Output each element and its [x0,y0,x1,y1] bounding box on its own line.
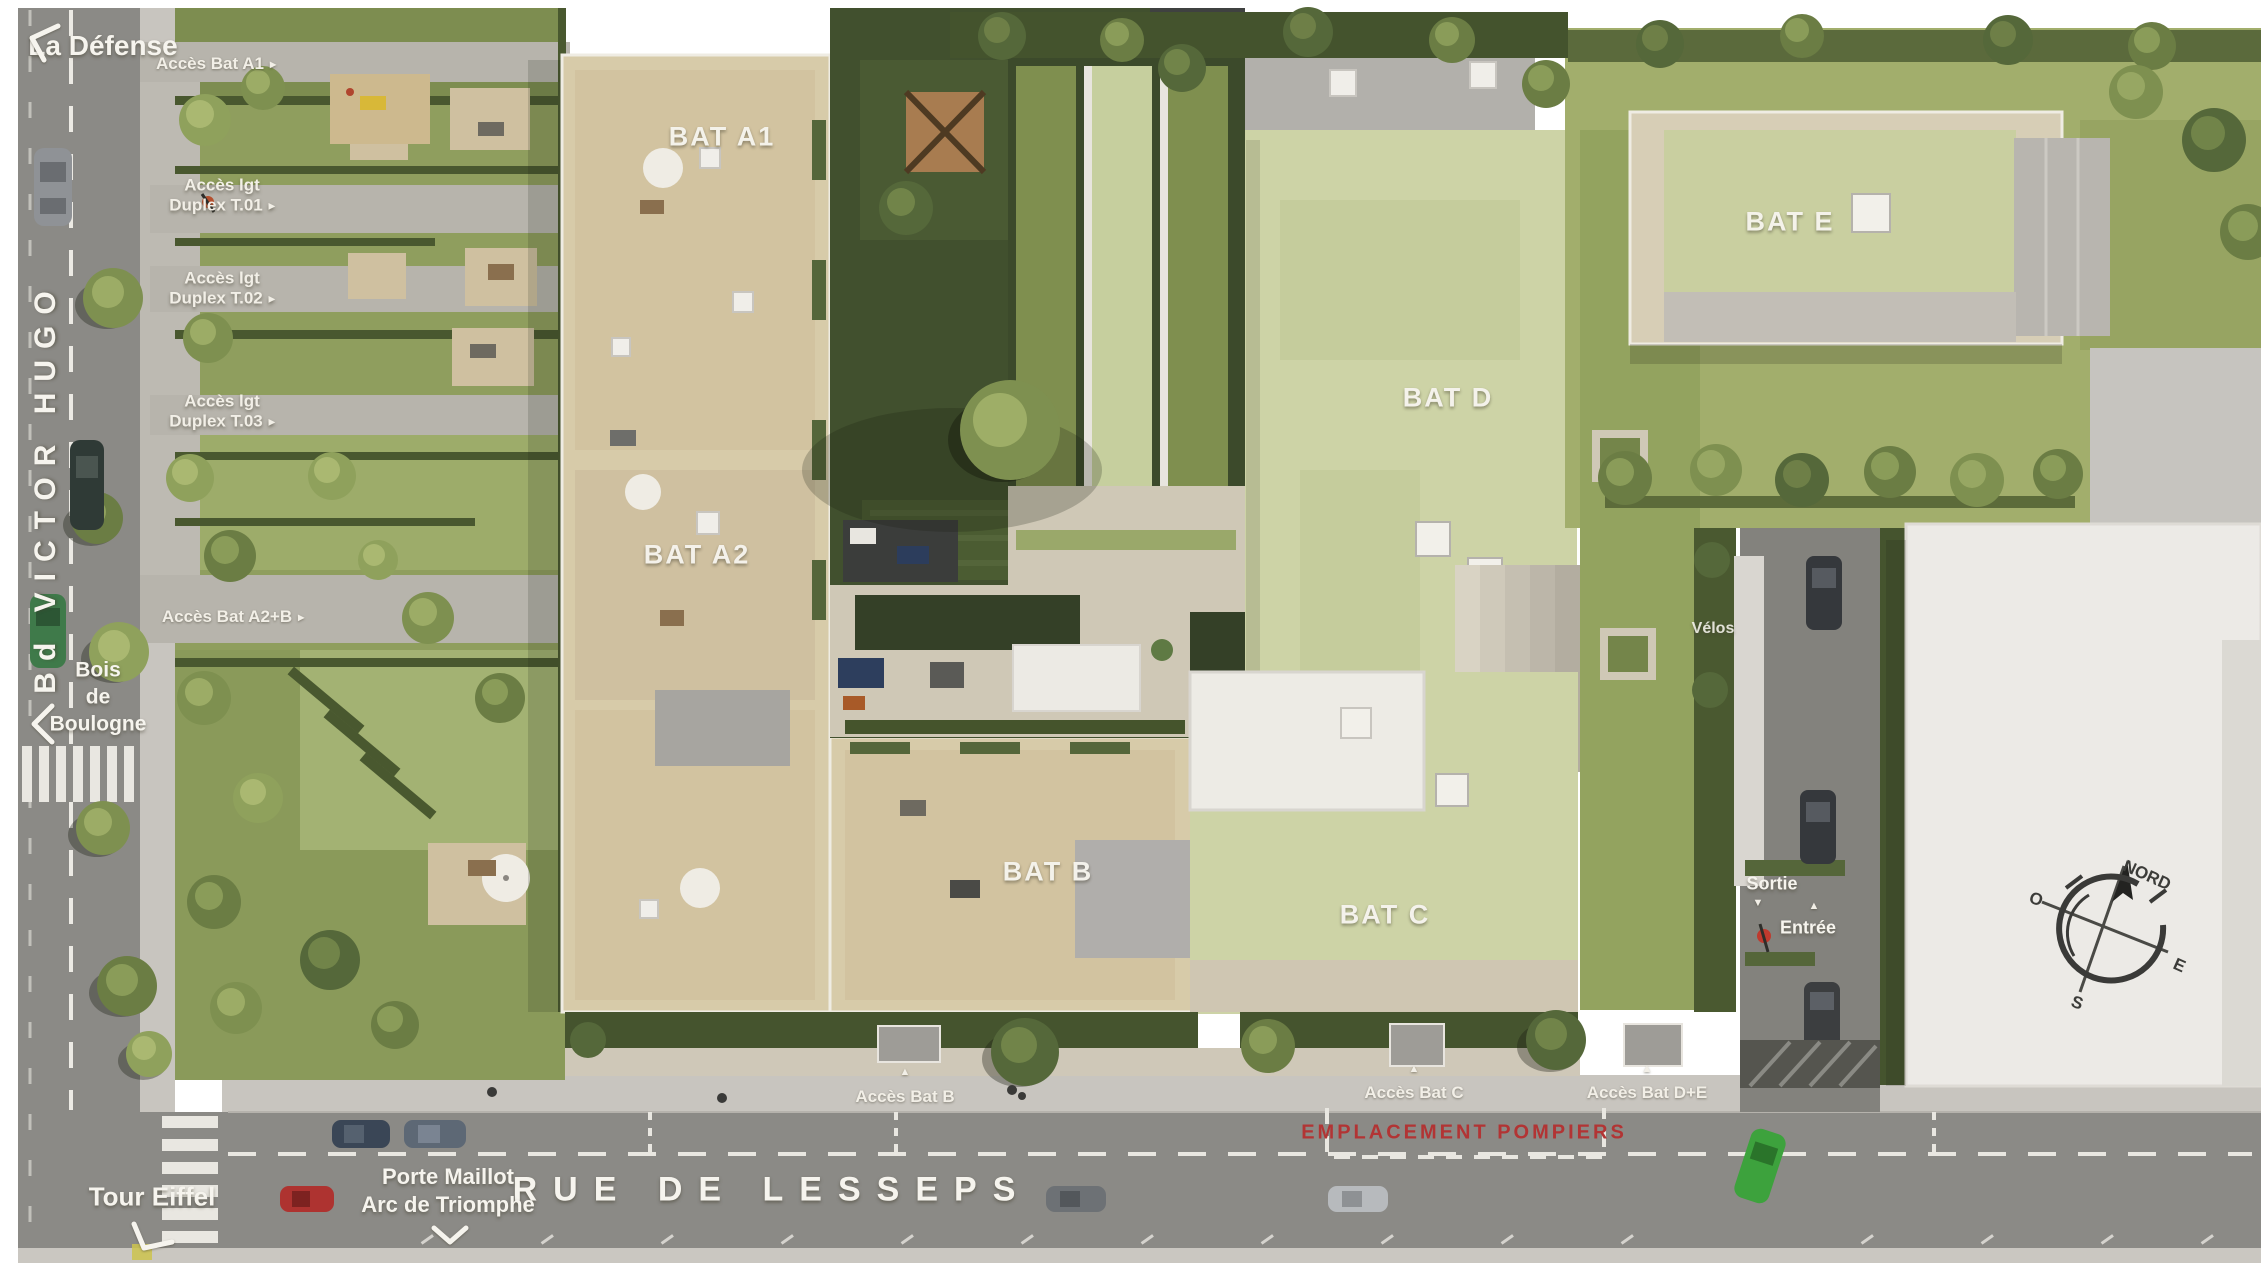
access-label-text: Accès lgt [184,269,260,289]
car [70,440,104,530]
access-label-text: Accès Bat A1 [156,54,264,74]
arrow-down-left-icon [126,1218,178,1256]
building-bat-e [1630,112,2110,364]
building-label-bat-a1: BAT A1 [669,122,776,153]
building-label-bat-d: BAT D [1403,383,1494,414]
arrow-up-icon: ▲ [900,1066,911,1078]
entrance-label: Entrée [1780,918,1836,939]
building-label-bat-a2: BAT A2 [644,540,751,571]
access-label-text: Accès lgt [184,176,260,196]
tree [2109,65,2163,119]
tree [300,930,360,990]
arrow-right-icon: ▸ [270,57,276,71]
arrow-up-left-icon [20,16,64,64]
access-label-text: Duplex T.03 [169,412,263,432]
tree [1100,18,1144,62]
exit-label: Sortie [1746,874,1797,895]
parking-driveway [1694,528,1906,1112]
site-plan: NORD O E S La Défense Accès Bat A1 ▸ Acc… [0,0,2261,1280]
building-shadow [528,60,562,1012]
building-label-bat-c: BAT C [1340,900,1431,931]
tree [1950,453,2004,507]
arrow-up-icon: ▲ [1409,1063,1420,1075]
tree [187,875,241,929]
tree [371,1001,419,1049]
tree [1158,44,1206,92]
access-label-duplex-t01: Accès lgt Duplex T.01▸ [169,176,275,217]
street-label-bd-victor-hugo: Bd VICTOR HUGO [29,280,63,693]
direction-label-text: de [86,684,111,711]
arrow-down-icon [428,1222,472,1248]
direction-label-text: Arc de Triomphe [361,1191,535,1219]
access-label-duplex-t02: Accès lgt Duplex T.02▸ [169,269,275,310]
tree [1241,1019,1295,1073]
arrow-down-icon: ▼ [1753,897,1764,909]
car [1328,1186,1388,1212]
direction-label-text: Boulogne [50,711,147,738]
bike-area-label: Vélos [1692,620,1735,638]
access-label-bat-b: Accès Bat B [855,1087,954,1107]
access-label-text: Accès lgt [184,392,260,412]
access-label-bat-c: Accès Bat C [1364,1083,1463,1103]
tree [570,1022,606,1058]
tree [2033,449,2083,499]
site-plan-drawing: NORD O E S [0,0,2261,1280]
tree [879,181,933,235]
access-label-text: Accès Bat A2+B [162,607,292,627]
tree [1775,453,1829,507]
arrow-right-icon: ▸ [298,610,304,624]
direction-label-bois-de-boulogne: Bois de Boulogne [50,657,147,738]
access-label-text: Duplex T.02 [169,289,263,309]
tree [358,540,398,580]
car [404,1120,466,1148]
arrow-up-icon: ▲ [1809,900,1820,912]
tree [210,982,262,1034]
gazebo [906,92,984,172]
tree [177,671,231,725]
access-label-text: Accès Bat B [855,1087,954,1107]
tree [204,530,256,582]
access-label-duplex-t03: Accès lgt Duplex T.03▸ [169,392,275,433]
tree [1694,542,1730,578]
access-label-text: Accès Bat D+E [1587,1083,1707,1103]
tree [1598,451,1652,505]
tree [1864,446,1916,498]
tree [978,12,1026,60]
tree [1690,444,1742,496]
fire-lane-label: EMPLACEMENT POMPIERS [1301,1122,1627,1145]
access-label-text: Accès Bat C [1364,1083,1463,1103]
tree [475,673,525,723]
tree [183,313,233,363]
arrow-left-icon [24,698,60,746]
direction-label-tour-eiffel: Tour Eiffel [89,1182,216,1213]
tree [166,454,214,502]
arrow-up-icon: ▲ [1642,1063,1653,1075]
car [34,148,72,226]
car [280,1186,334,1212]
tree [308,452,356,500]
direction-label-text: Porte Maillot [382,1163,514,1191]
tree [402,592,454,644]
access-label-bat-a2b: Accès Bat A2+B ▸ [162,607,304,627]
tree [1780,14,1824,58]
tree [1636,20,1684,68]
tree [179,94,231,146]
bike-shed [1734,556,1764,886]
arrow-right-icon: ▸ [269,199,275,213]
car [332,1120,390,1148]
tree [2182,108,2246,172]
building-label-bat-b: BAT B [1003,857,1094,888]
tree [1429,17,1475,63]
street-edge-hedge [565,1012,1682,1076]
ramp-hatch [1740,1040,1880,1088]
building-label-bat-e: BAT E [1746,207,1835,238]
tree [233,773,283,823]
access-label-bat-a1: Accès Bat A1 ▸ [156,54,276,74]
access-label-text: Duplex T.01 [169,196,263,216]
courtyard-garden [802,8,1245,738]
tree [1983,15,2033,65]
tree [1283,7,1333,57]
tree [1692,672,1728,708]
car [1046,1186,1106,1212]
building-bat-d [1245,58,1580,772]
access-label-bat-de: Accès Bat D+E [1587,1083,1707,1103]
building-bat-c [1190,672,1578,1014]
arrow-right-icon: ▸ [269,292,275,306]
direction-label-porte-maillot: Porte Maillot Arc de Triomphe [361,1163,535,1219]
arrow-right-icon: ▸ [269,415,275,429]
street-label-rue-de-lesseps: RUE DE LESSEPS [513,1171,1032,1210]
direction-label-text: Bois [75,657,121,684]
tree [1522,60,1570,108]
playground [330,74,430,144]
tree [2128,22,2176,70]
